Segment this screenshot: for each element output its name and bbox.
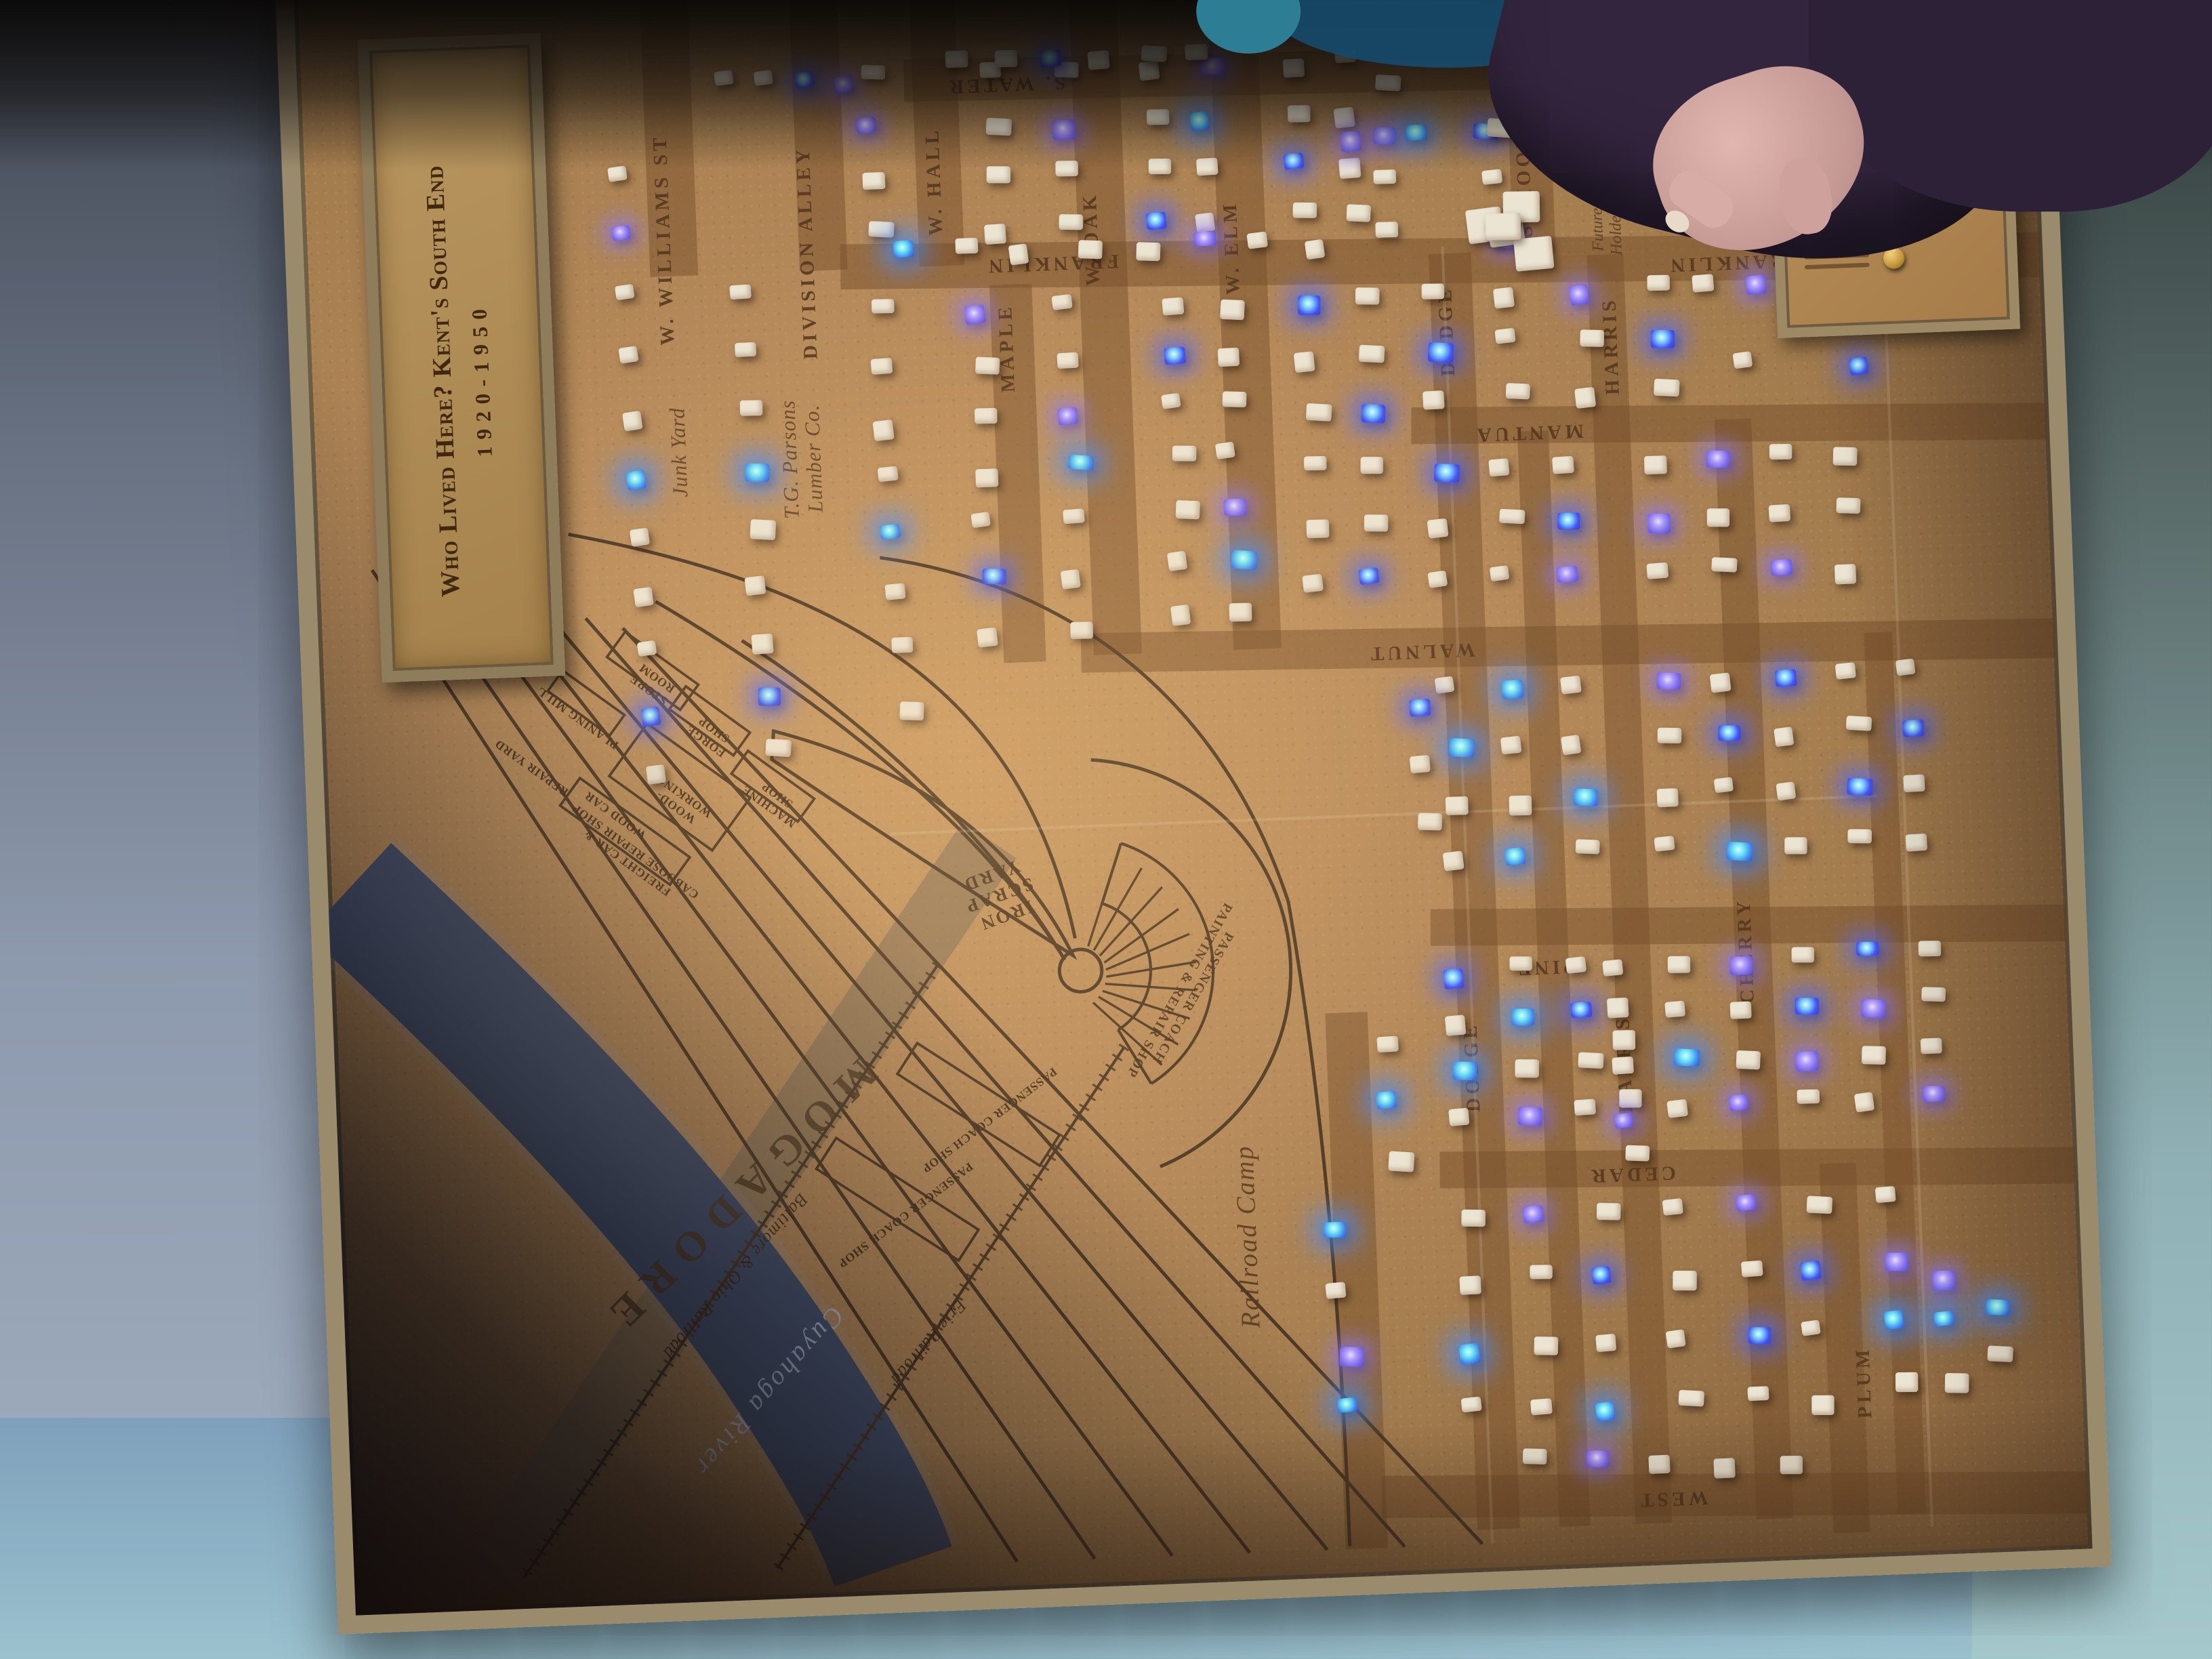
- roundhouse: [1054, 840, 1217, 1087]
- title-plaque: Who Lived Here? Kent's South End 1920-19…: [357, 33, 565, 682]
- river-edge: [349, 869, 893, 1586]
- exhibit-title: Who Lived Here? Kent's South End: [421, 165, 467, 598]
- exhibit-years: 1920-1950: [468, 302, 498, 457]
- exhibit-photo: W. WILLIAMS STDIVISION ALLEYW. HALLW. OA…: [0, 0, 2212, 1659]
